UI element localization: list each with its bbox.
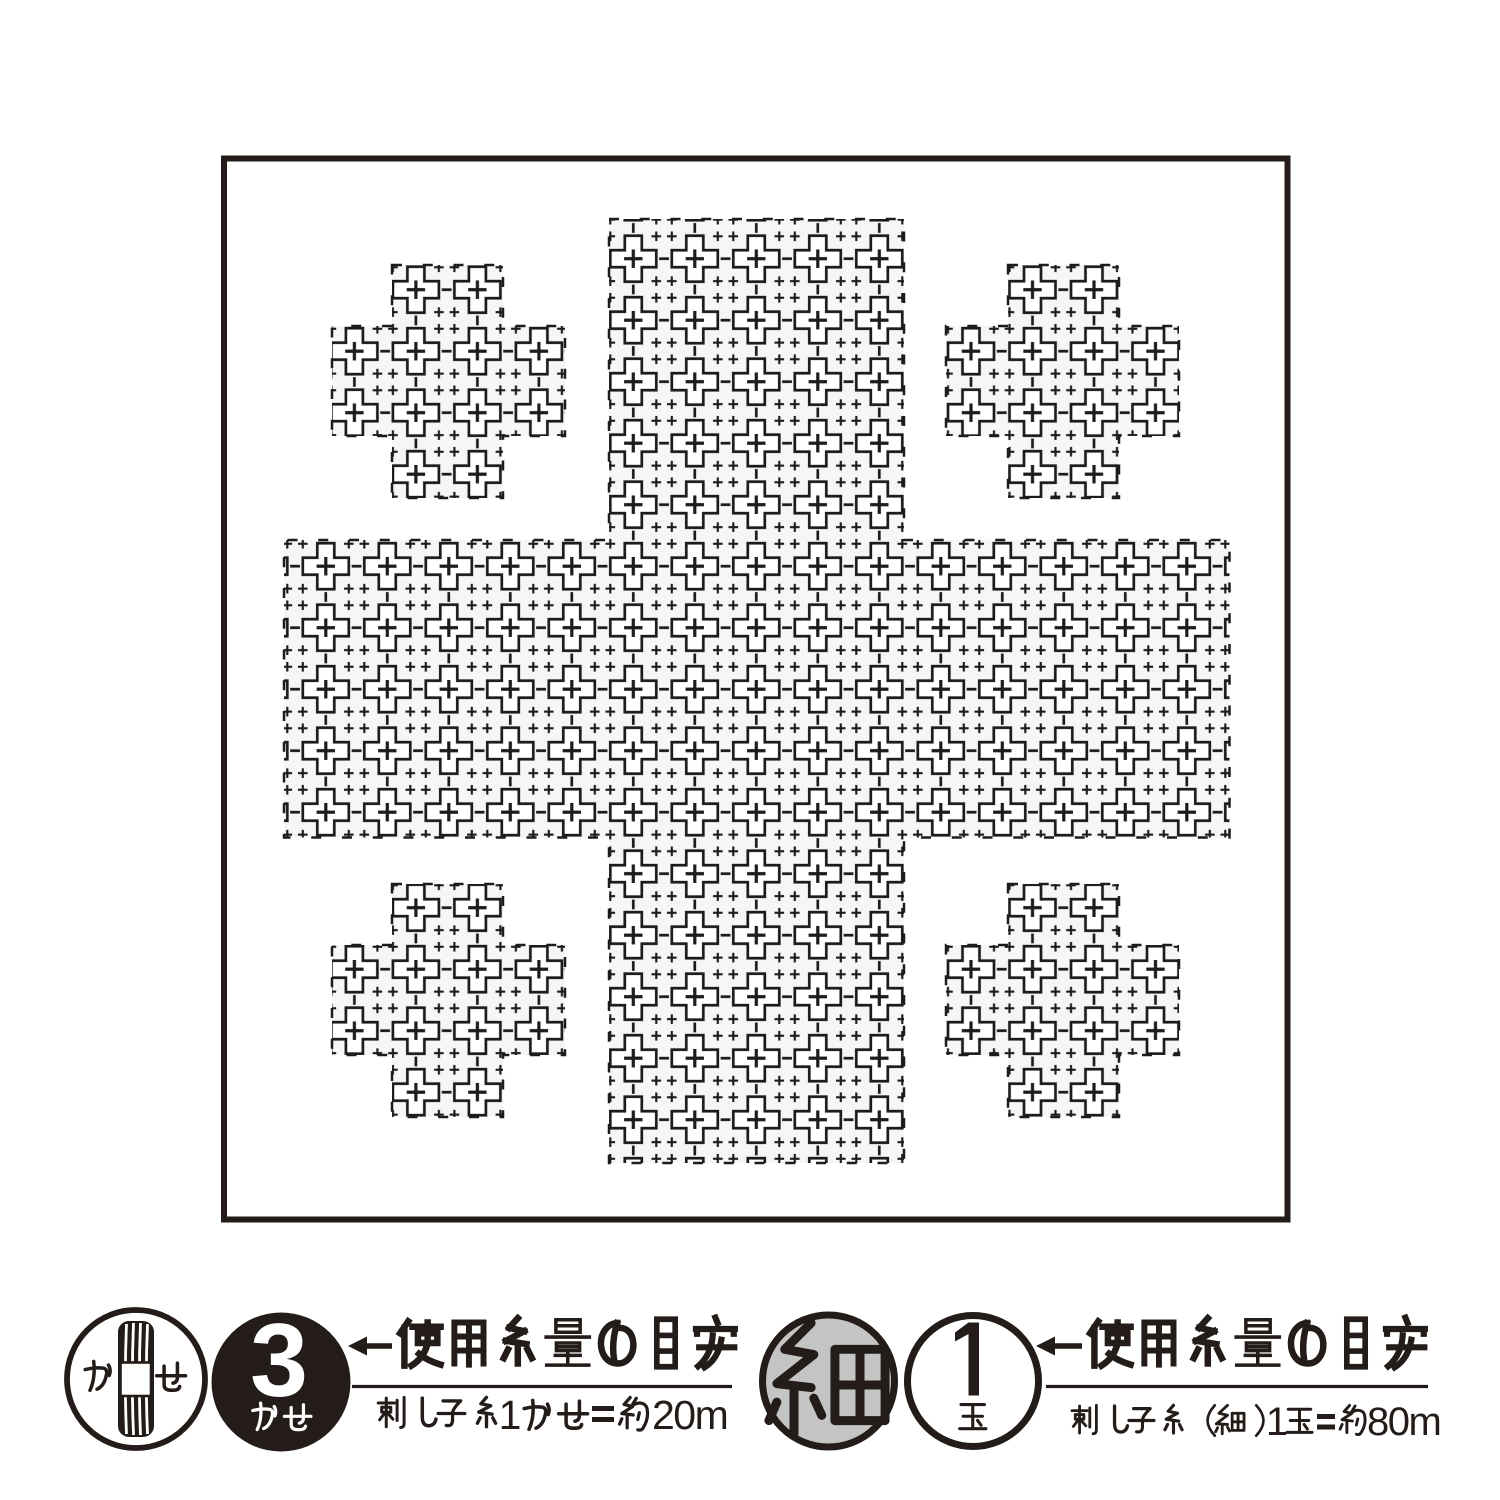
svg-text:3: 3 [250,1303,308,1419]
svg-text:1: 1 [499,1392,522,1438]
svg-text:20m: 20m [652,1392,727,1438]
svg-text:80m: 80m [1367,1400,1440,1444]
svg-text:1: 1 [1266,1400,1288,1444]
